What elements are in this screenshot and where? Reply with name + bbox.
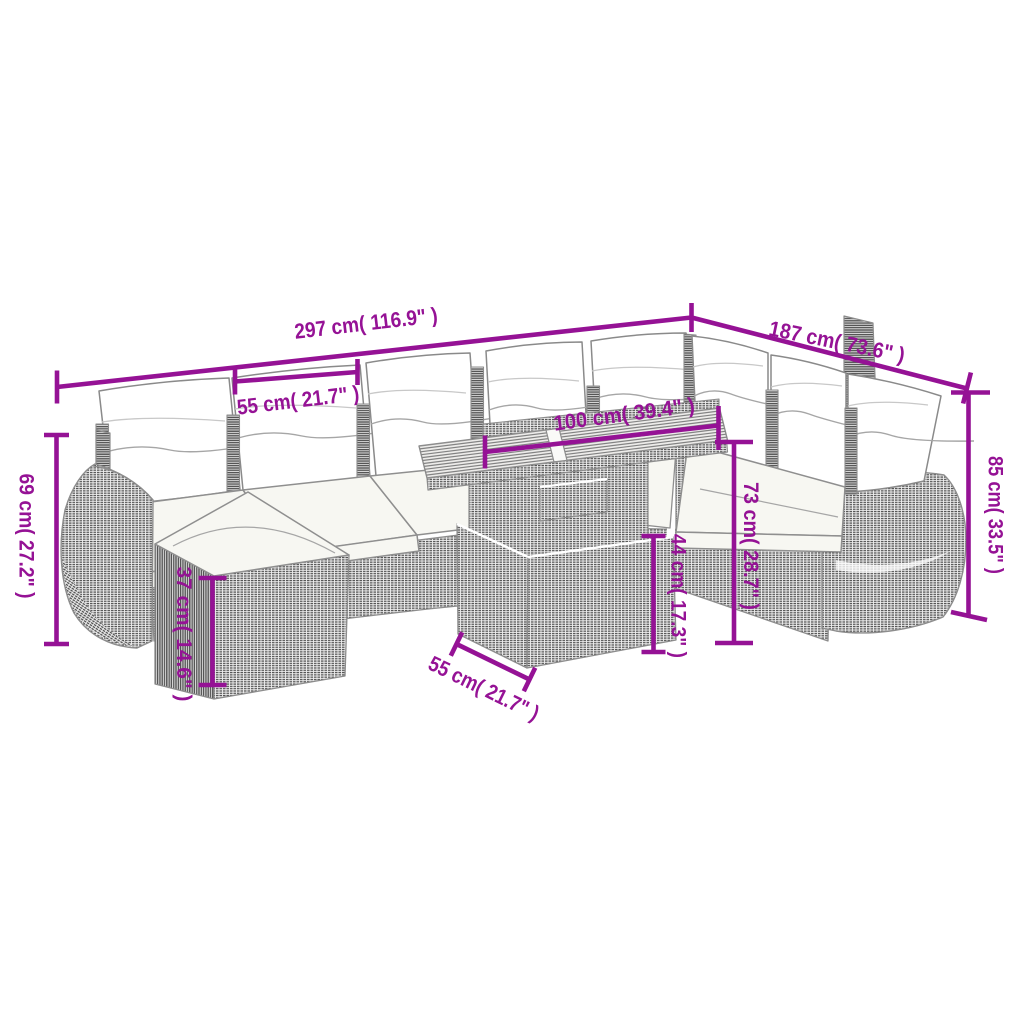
svg-text:37 cm( 14.6" ): 37 cm( 14.6" ): [172, 567, 196, 702]
svg-text:44 cm( 17.3" ): 44 cm( 17.3" ): [667, 534, 691, 658]
svg-text:69 cm( 27.2" ): 69 cm( 27.2" ): [15, 474, 39, 599]
svg-text:85 cm( 33.5" ): 85 cm( 33.5" ): [984, 456, 1008, 574]
svg-text:73 cm( 28.7" ): 73 cm( 28.7" ): [739, 482, 763, 610]
